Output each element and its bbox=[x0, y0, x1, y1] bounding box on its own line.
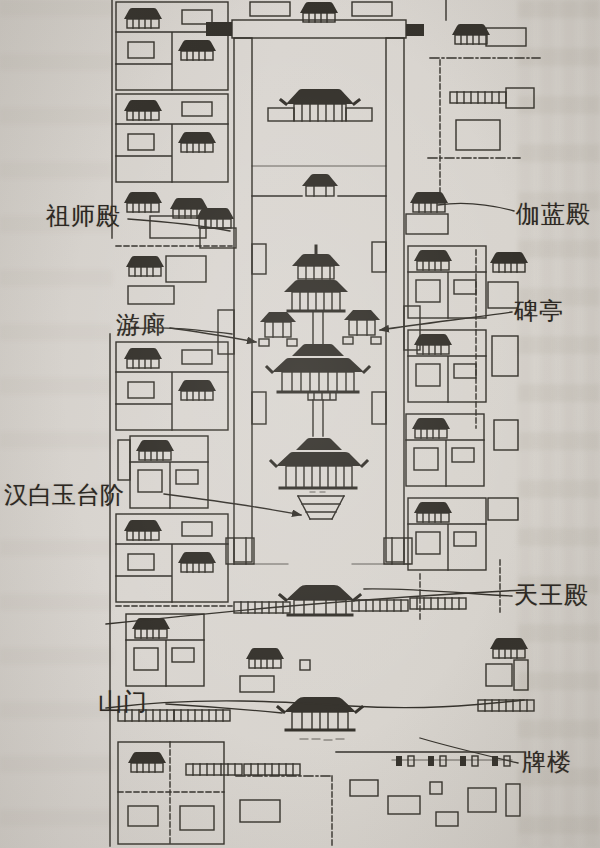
label-marble-steps: 汉白玉台阶 bbox=[4, 482, 124, 508]
label-mountain-gate: 山门 bbox=[98, 689, 148, 715]
corridor-west bbox=[234, 38, 252, 562]
label-qielan-hall: 伽蓝殿 bbox=[516, 201, 591, 227]
two-storey-pavilion bbox=[284, 246, 348, 344]
hall-first-courtyard bbox=[268, 89, 372, 121]
label-zushi-hall: 祖师殿 bbox=[46, 203, 121, 229]
great-hall-2 bbox=[271, 438, 367, 519]
tianwang-hall bbox=[234, 585, 466, 615]
temple-plan-map bbox=[0, 0, 600, 848]
qielan-hall bbox=[406, 192, 448, 234]
book-page-photo: { "figure": { "labels": [ {"id": "zushid… bbox=[0, 0, 600, 848]
label-tianwang-hall: 天王殿 bbox=[514, 582, 589, 608]
stele-pavilion-east bbox=[343, 310, 381, 344]
marble-steps bbox=[298, 496, 344, 519]
stele-pavilion-west bbox=[259, 312, 297, 346]
label-pailou-arch: 牌楼 bbox=[522, 749, 572, 775]
great-hall-1 bbox=[267, 344, 369, 436]
pailou-row bbox=[336, 752, 524, 766]
label-corridor: 游廊 bbox=[116, 312, 166, 338]
inner-gate bbox=[302, 174, 338, 196]
corridor-end-pavilions bbox=[226, 538, 412, 564]
south-blocks bbox=[236, 776, 520, 848]
label-stele-pavilion: 碑亭 bbox=[514, 298, 564, 324]
city-blocks-left bbox=[110, 0, 232, 846]
corridor-east bbox=[386, 38, 404, 562]
